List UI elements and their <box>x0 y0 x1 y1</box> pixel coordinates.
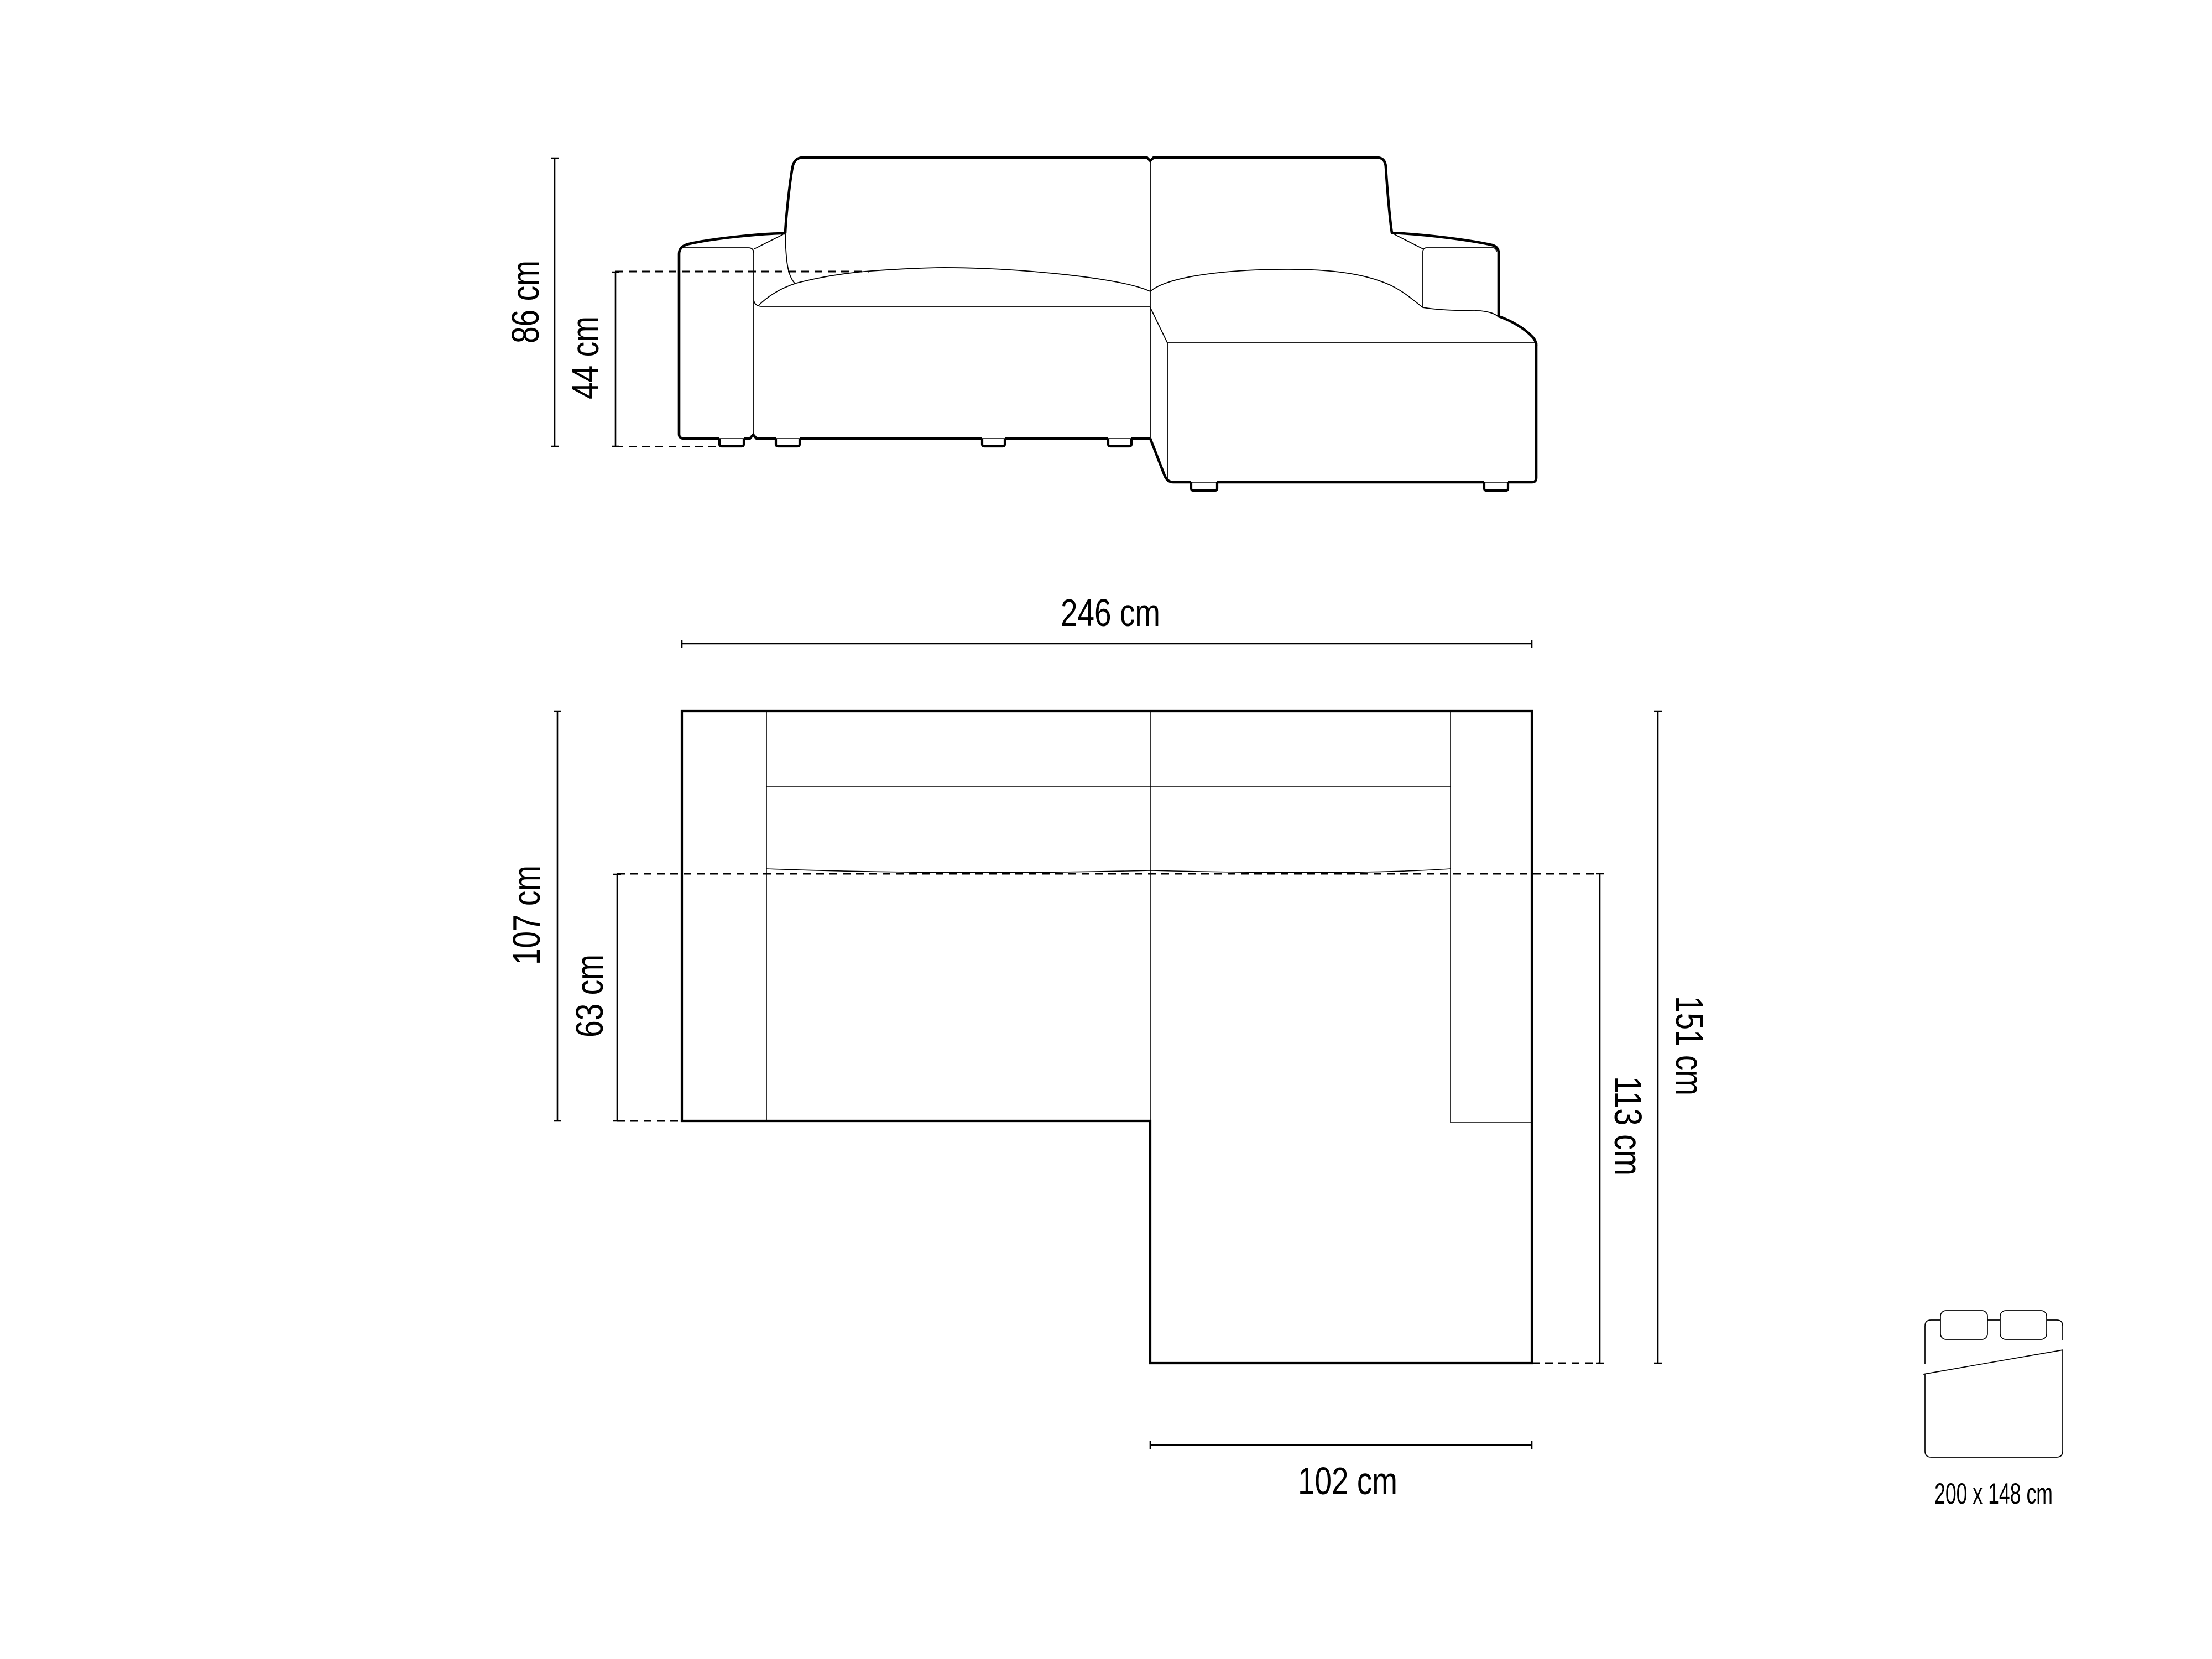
svg-text:151 cm: 151 cm <box>1668 996 1711 1095</box>
svg-text:44 cm: 44 cm <box>564 316 607 399</box>
svg-text:107 cm: 107 cm <box>505 865 548 965</box>
svg-text:63 cm: 63 cm <box>568 954 611 1037</box>
svg-text:113 cm: 113 cm <box>1606 1076 1650 1176</box>
svg-text:102 cm: 102 cm <box>1298 1459 1397 1503</box>
svg-text:200 x 148 cm: 200 x 148 cm <box>1934 1478 2053 1510</box>
svg-text:246 cm: 246 cm <box>1061 591 1160 634</box>
svg-text:86 cm: 86 cm <box>504 260 547 343</box>
